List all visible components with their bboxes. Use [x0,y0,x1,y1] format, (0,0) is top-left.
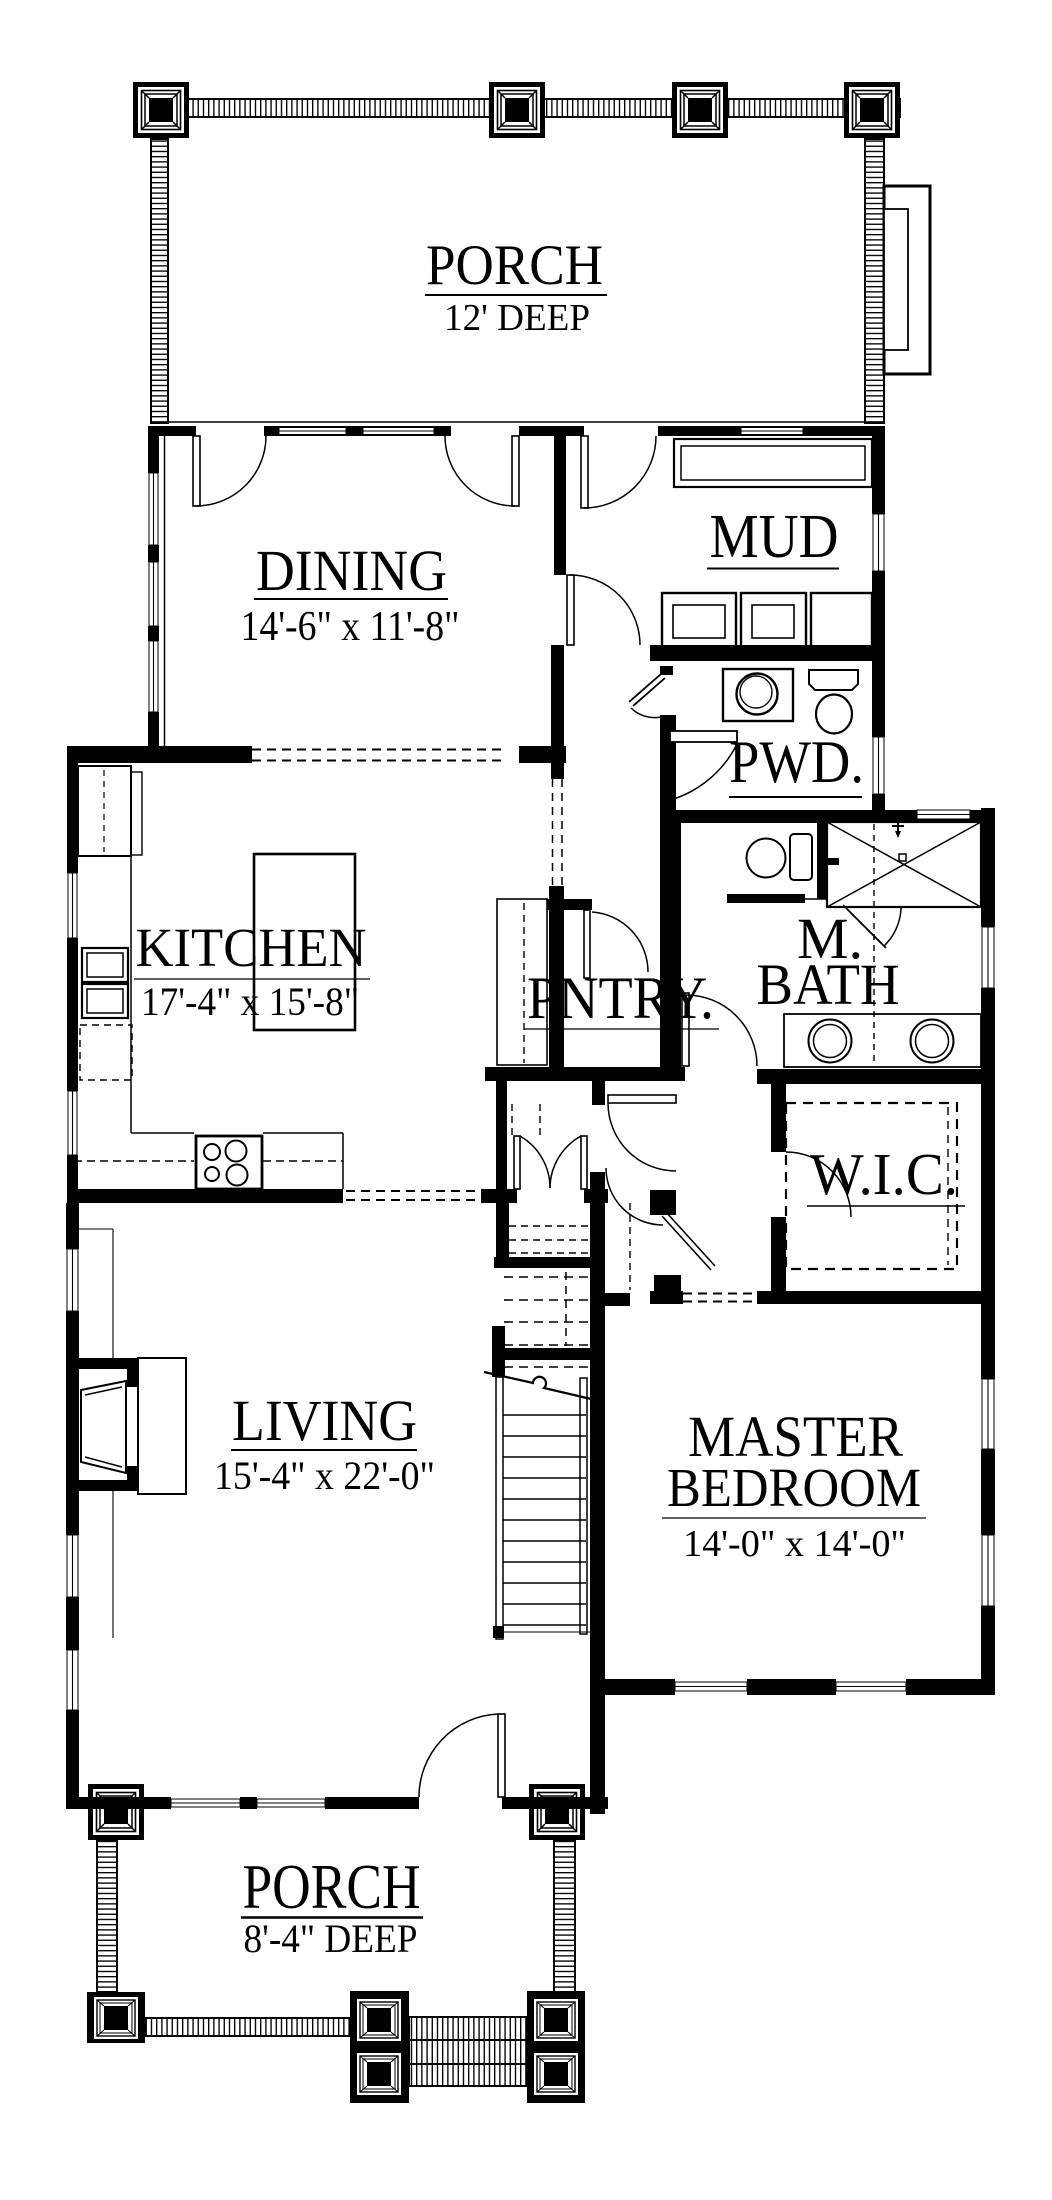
svg-text:14'-6" x 11'-8": 14'-6" x 11'-8" [241,604,460,650]
svg-text:PORCH: PORCH [243,1852,421,1922]
svg-text:15'-4" x 22'-0": 15'-4" x 22'-0" [214,1453,435,1498]
svg-text:17'-4" x 15'-8": 17'-4" x 15'-8" [141,979,359,1024]
svg-text:PWD.: PWD. [729,729,864,795]
svg-text:MUD: MUD [710,503,839,571]
svg-text:LIVING: LIVING [232,1388,417,1453]
svg-text:PORCH: PORCH [426,234,603,297]
svg-text:8'-4" DEEP: 8'-4" DEEP [244,1916,418,1961]
svg-text:DINING: DINING [256,538,447,603]
svg-text:14'-0" x 14'-0": 14'-0" x 14'-0" [683,1523,906,1565]
svg-text:PNTRY.: PNTRY. [527,965,714,1031]
svg-text:BEDROOM: BEDROOM [667,1457,921,1518]
svg-text:W.I.C.: W.I.C. [810,1141,958,1207]
svg-text:BATH: BATH [757,952,900,1017]
svg-text:KITCHEN: KITCHEN [136,917,367,978]
svg-text:12' DEEP: 12' DEEP [444,297,590,339]
